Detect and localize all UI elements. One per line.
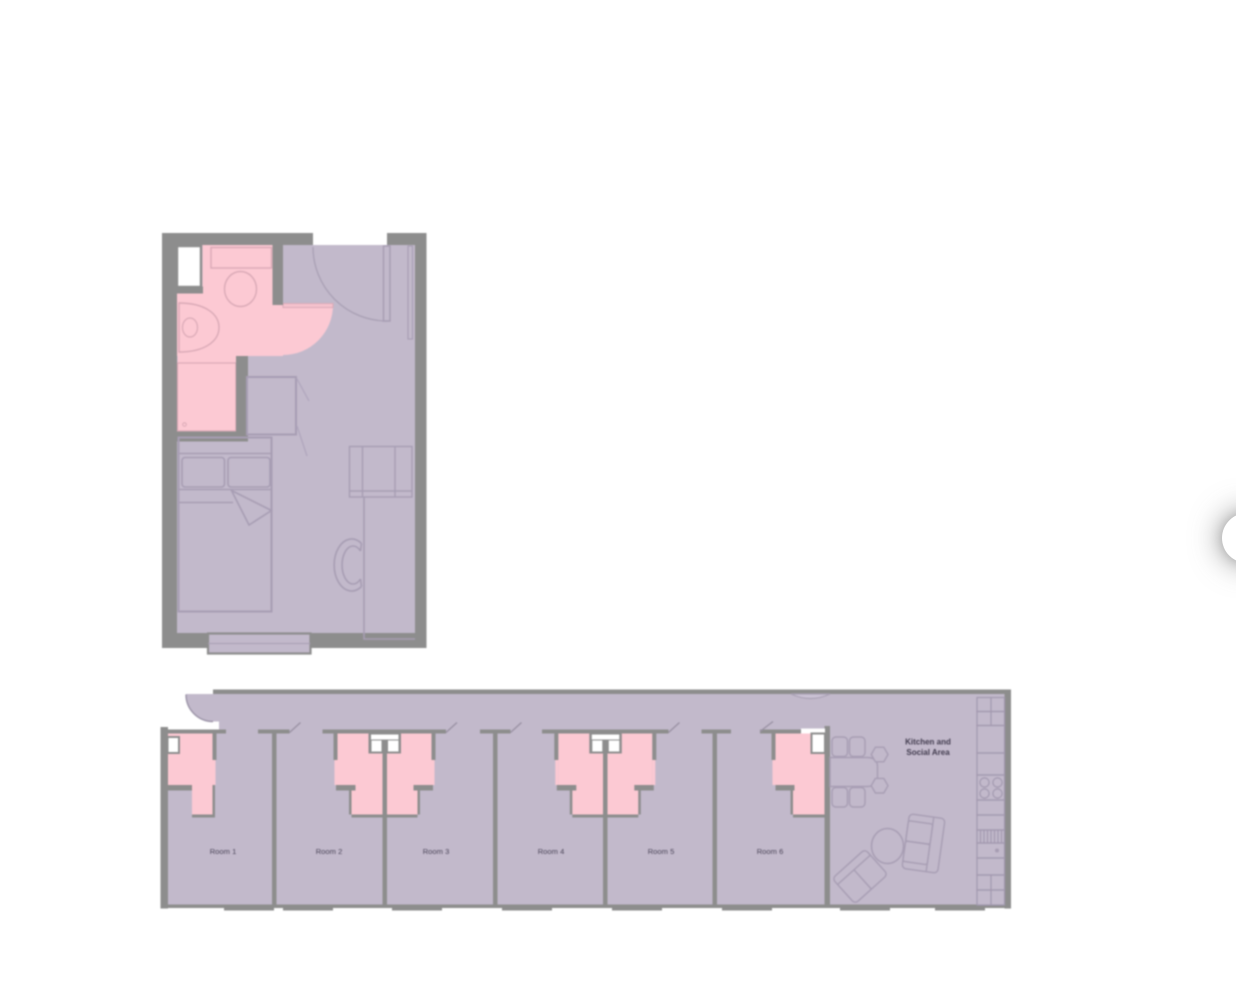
svg-text:Social Area: Social Area xyxy=(906,748,950,757)
svg-text:Room 3: Room 3 xyxy=(423,847,450,856)
svg-text:Room 5: Room 5 xyxy=(648,847,675,856)
svg-text:Room 6: Room 6 xyxy=(757,847,784,856)
svg-text:Room 2: Room 2 xyxy=(316,847,343,856)
svg-text:Kitchen and: Kitchen and xyxy=(905,738,951,747)
svg-text:Room 4: Room 4 xyxy=(538,847,565,856)
svg-text:Room 1: Room 1 xyxy=(210,847,237,856)
